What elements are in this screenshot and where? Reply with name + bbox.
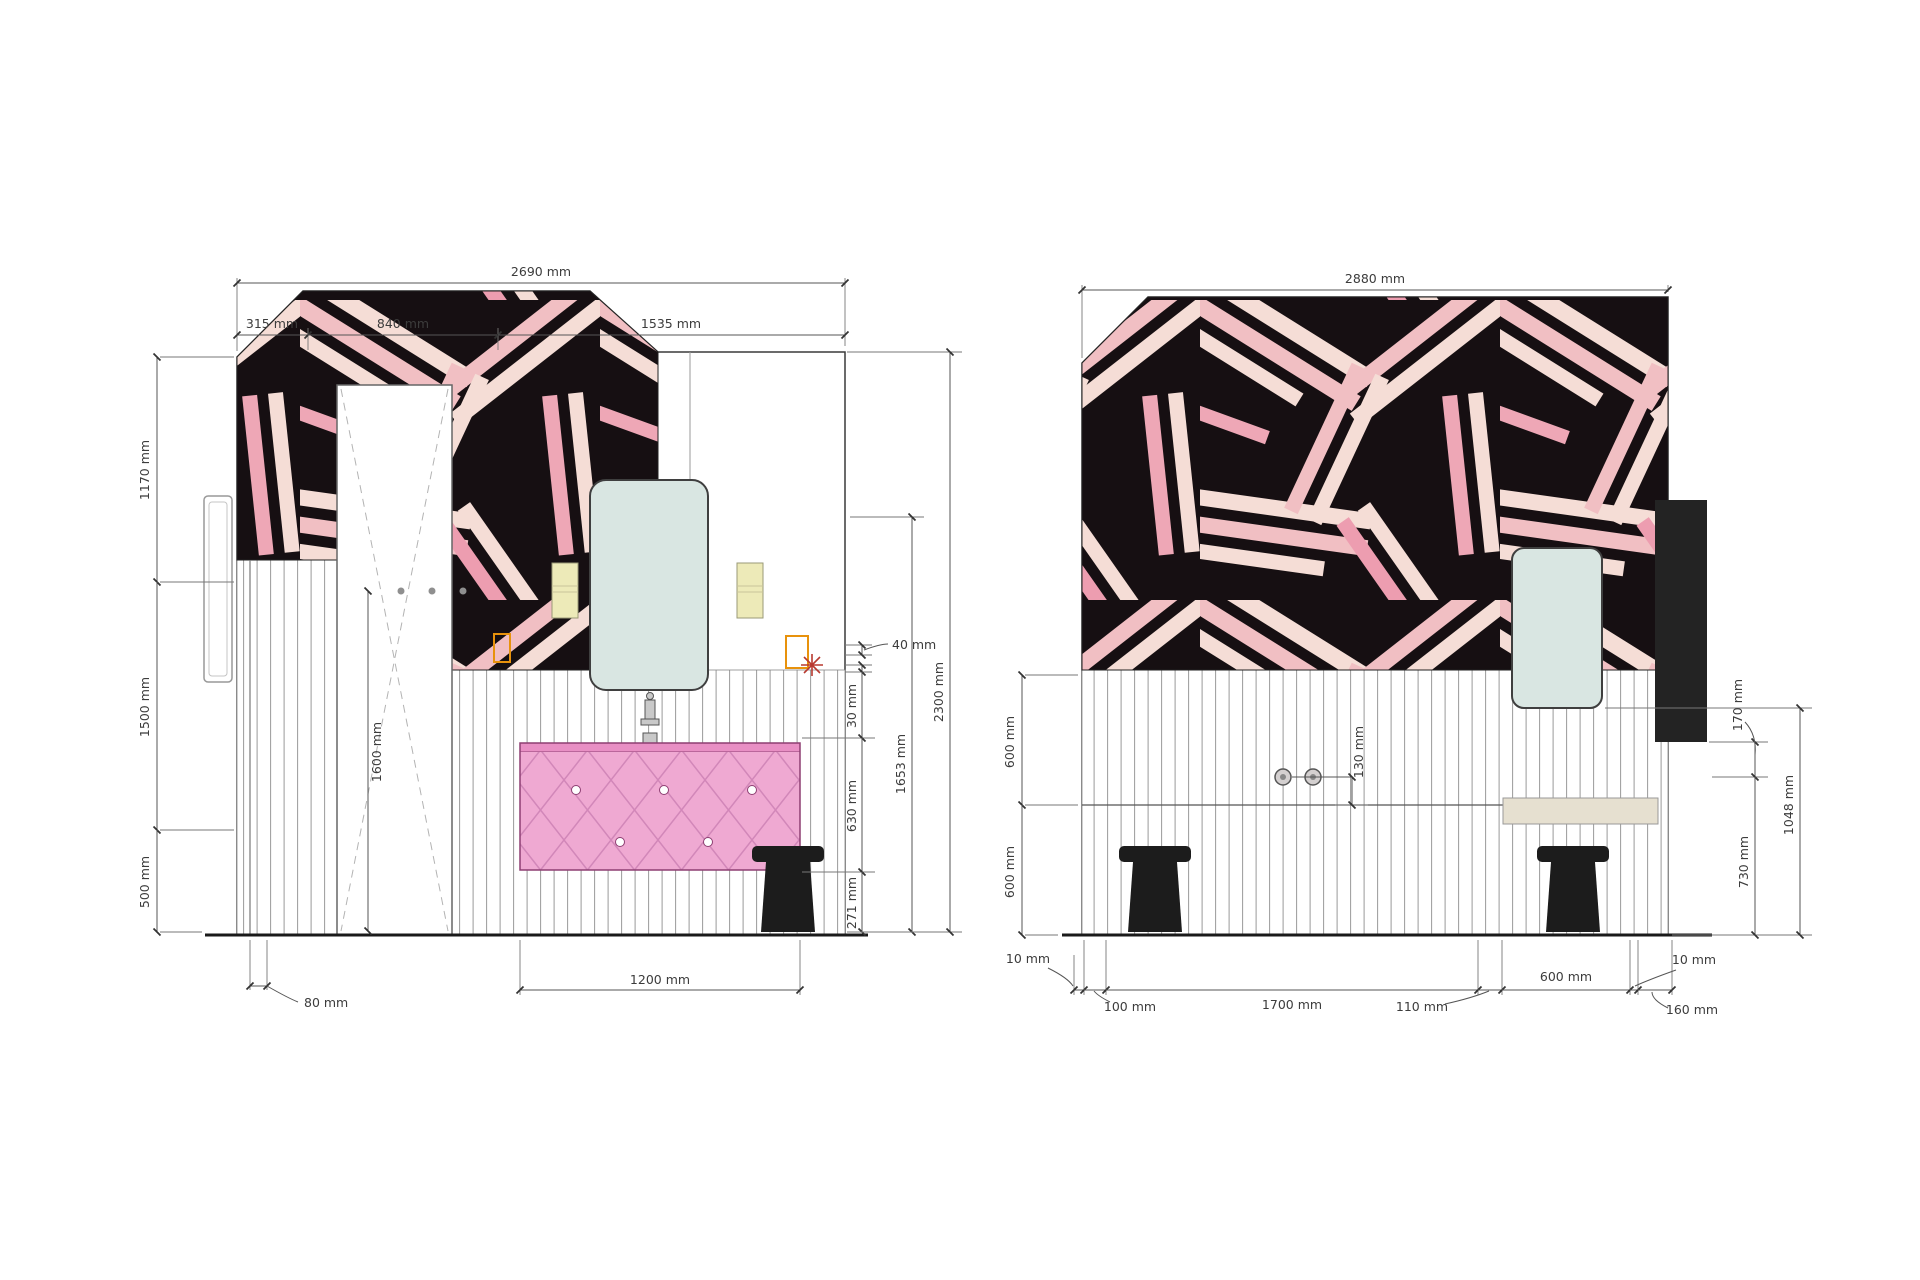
dim-frame-offset: 80 mm [250, 940, 348, 1010]
dim-label: 1700 mm [1262, 997, 1322, 1012]
dim-label: 1535 mm [641, 316, 701, 331]
dim-label: 1600 mm [369, 722, 384, 782]
dim-left-heights: 600 mm 600 mm [1002, 675, 1078, 935]
vanity-knob [704, 838, 713, 847]
dim-label: 2880 mm [1345, 271, 1405, 286]
vanity-knob [616, 838, 625, 847]
wainscot-paneling-left [237, 560, 337, 935]
dim-label: 1653 mm [893, 734, 908, 794]
dim-label: 600 mm [1540, 969, 1592, 984]
wall-tap-left [1275, 769, 1291, 785]
mirror [1512, 548, 1602, 708]
dim-bottom-segments: 10 mm 100 mm 1700 mm 110 mm 600 mm 10 mm… [1006, 940, 1718, 1017]
dim-mirror-bottom-height: 1653 mm [850, 517, 924, 932]
door [337, 385, 452, 935]
dim-label: 271 mm [844, 877, 859, 929]
dim-label: 1048 mm [1781, 775, 1796, 835]
dim-label: 840 mm [377, 316, 429, 331]
dim-label: 100 mm [1104, 999, 1156, 1014]
dim-label: 10 mm [1006, 951, 1050, 966]
vanity-knob [660, 786, 669, 795]
dim-label: 40 mm [892, 637, 936, 652]
dim-label: 2300 mm [931, 662, 946, 722]
black-wall-panel [1655, 500, 1707, 742]
towel-radiator [204, 496, 232, 682]
mirror [590, 480, 708, 690]
left-elevation: 2690 mm 315 mm 840 mm 1535 mm 1170 mm 15… [137, 264, 962, 1010]
dim-label: 160 mm [1666, 1002, 1718, 1017]
dim-vanity-width: 1200 mm [520, 940, 800, 995]
dim-label: 630 mm [844, 780, 859, 832]
right-elevation: 2880 mm 600 mm 600 mm 130 mm 170 mm [1002, 271, 1812, 1017]
dim-label: 110 mm [1396, 999, 1448, 1014]
stone-countertop [1503, 798, 1658, 824]
dim-label: 10 mm [1672, 952, 1716, 967]
dim-label: 2690 mm [511, 264, 571, 279]
dim-label: 315 mm [246, 316, 298, 331]
vanity-knob [572, 786, 581, 795]
fixture-star-marker [801, 654, 823, 676]
dim-label: 1500 mm [137, 677, 152, 737]
dim-label: 1170 mm [137, 440, 152, 500]
dim-label: 1200 mm [630, 972, 690, 987]
dim-label: 500 mm [137, 856, 152, 908]
dim-label: 600 mm [1002, 716, 1017, 768]
dim-label: 30 mm [844, 684, 859, 728]
dim-label: 600 mm [1002, 846, 1017, 898]
dim-label: 80 mm [304, 995, 348, 1010]
vanity-knob [748, 786, 757, 795]
dim-label: 730 mm [1736, 836, 1751, 888]
dim-label: 170 mm [1730, 679, 1745, 731]
wall-sconce-left [552, 563, 578, 618]
dim-label: 130 mm [1351, 726, 1366, 778]
wall-sconce-right [737, 563, 763, 618]
elevation-drawing-canvas: 2690 mm 315 mm 840 mm 1535 mm 1170 mm 15… [0, 0, 1920, 1280]
